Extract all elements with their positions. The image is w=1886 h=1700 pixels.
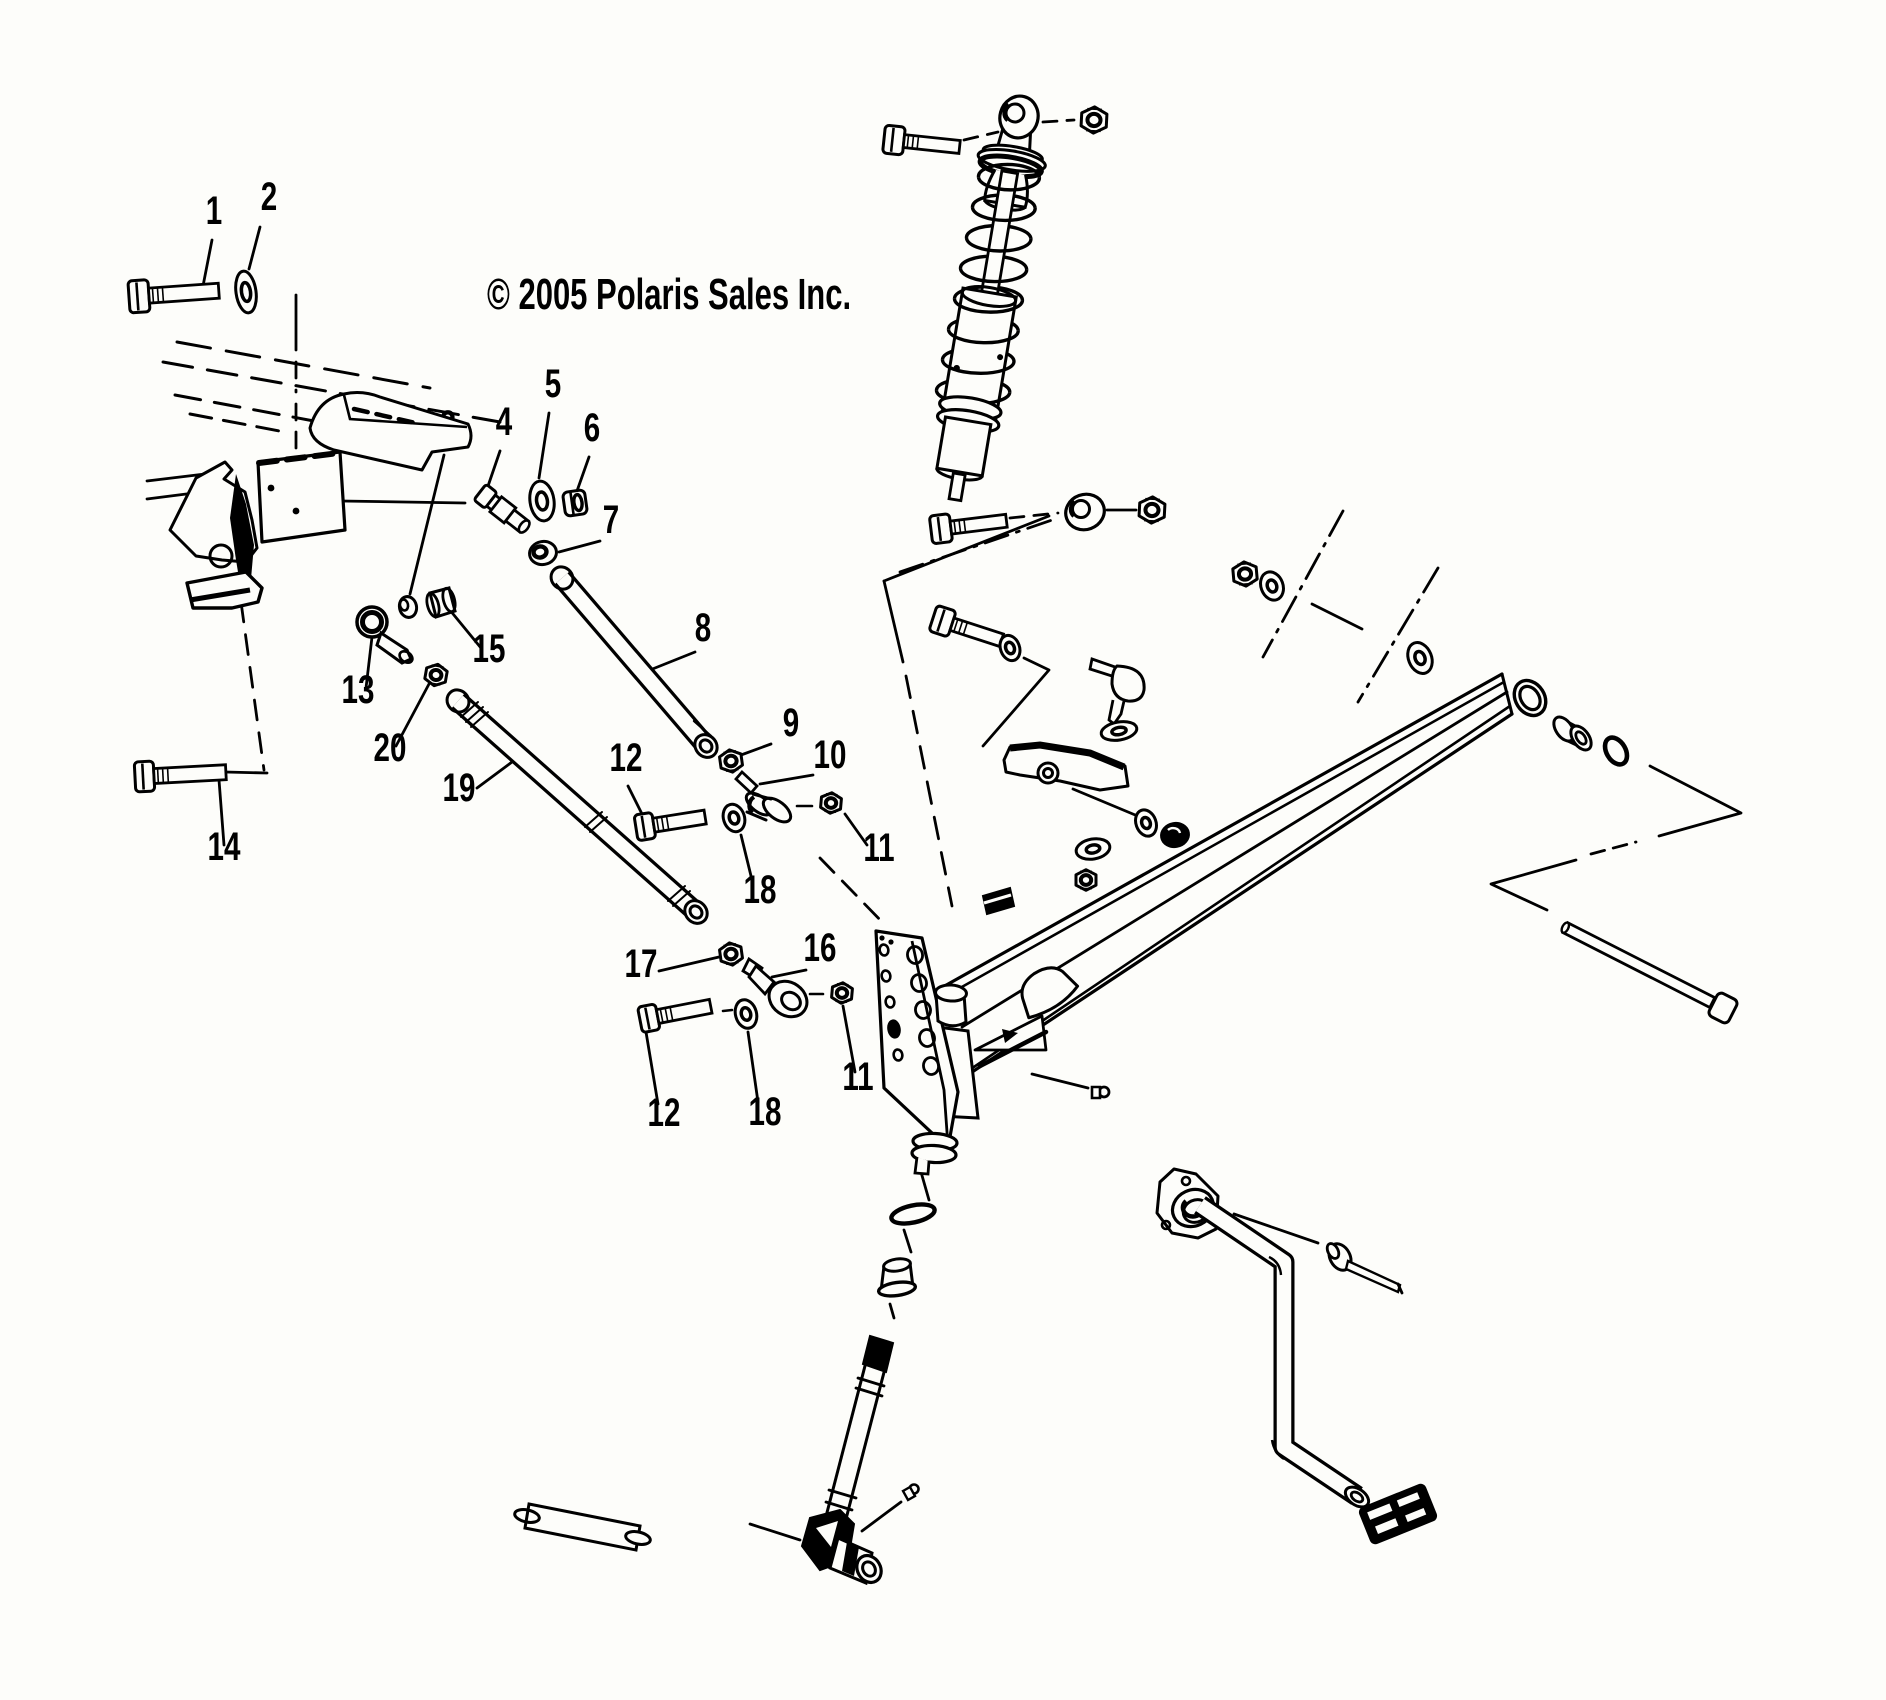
svg-text:16: 16 [804,926,837,970]
svg-text:6: 6 [584,406,600,450]
svg-text:18: 18 [749,1090,782,1134]
svg-text:20: 20 [374,726,407,770]
svg-text:11: 11 [863,826,894,870]
svg-text:10: 10 [814,733,847,777]
svg-text:© 2005 Polaris Sales Inc.: © 2005 Polaris Sales Inc. [487,271,851,320]
svg-text:7: 7 [603,498,619,542]
svg-text:12: 12 [610,736,643,780]
svg-text:15: 15 [473,627,506,671]
svg-text:18: 18 [744,868,777,912]
svg-text:1: 1 [206,189,222,233]
svg-text:13: 13 [342,668,375,712]
svg-text:19: 19 [443,766,476,810]
svg-text:11: 11 [842,1055,873,1099]
svg-text:2: 2 [261,175,277,219]
svg-text:17: 17 [625,942,658,986]
svg-text:12: 12 [648,1091,681,1135]
svg-text:5: 5 [545,362,561,406]
svg-text:9: 9 [783,701,799,745]
svg-text:8: 8 [695,606,711,650]
